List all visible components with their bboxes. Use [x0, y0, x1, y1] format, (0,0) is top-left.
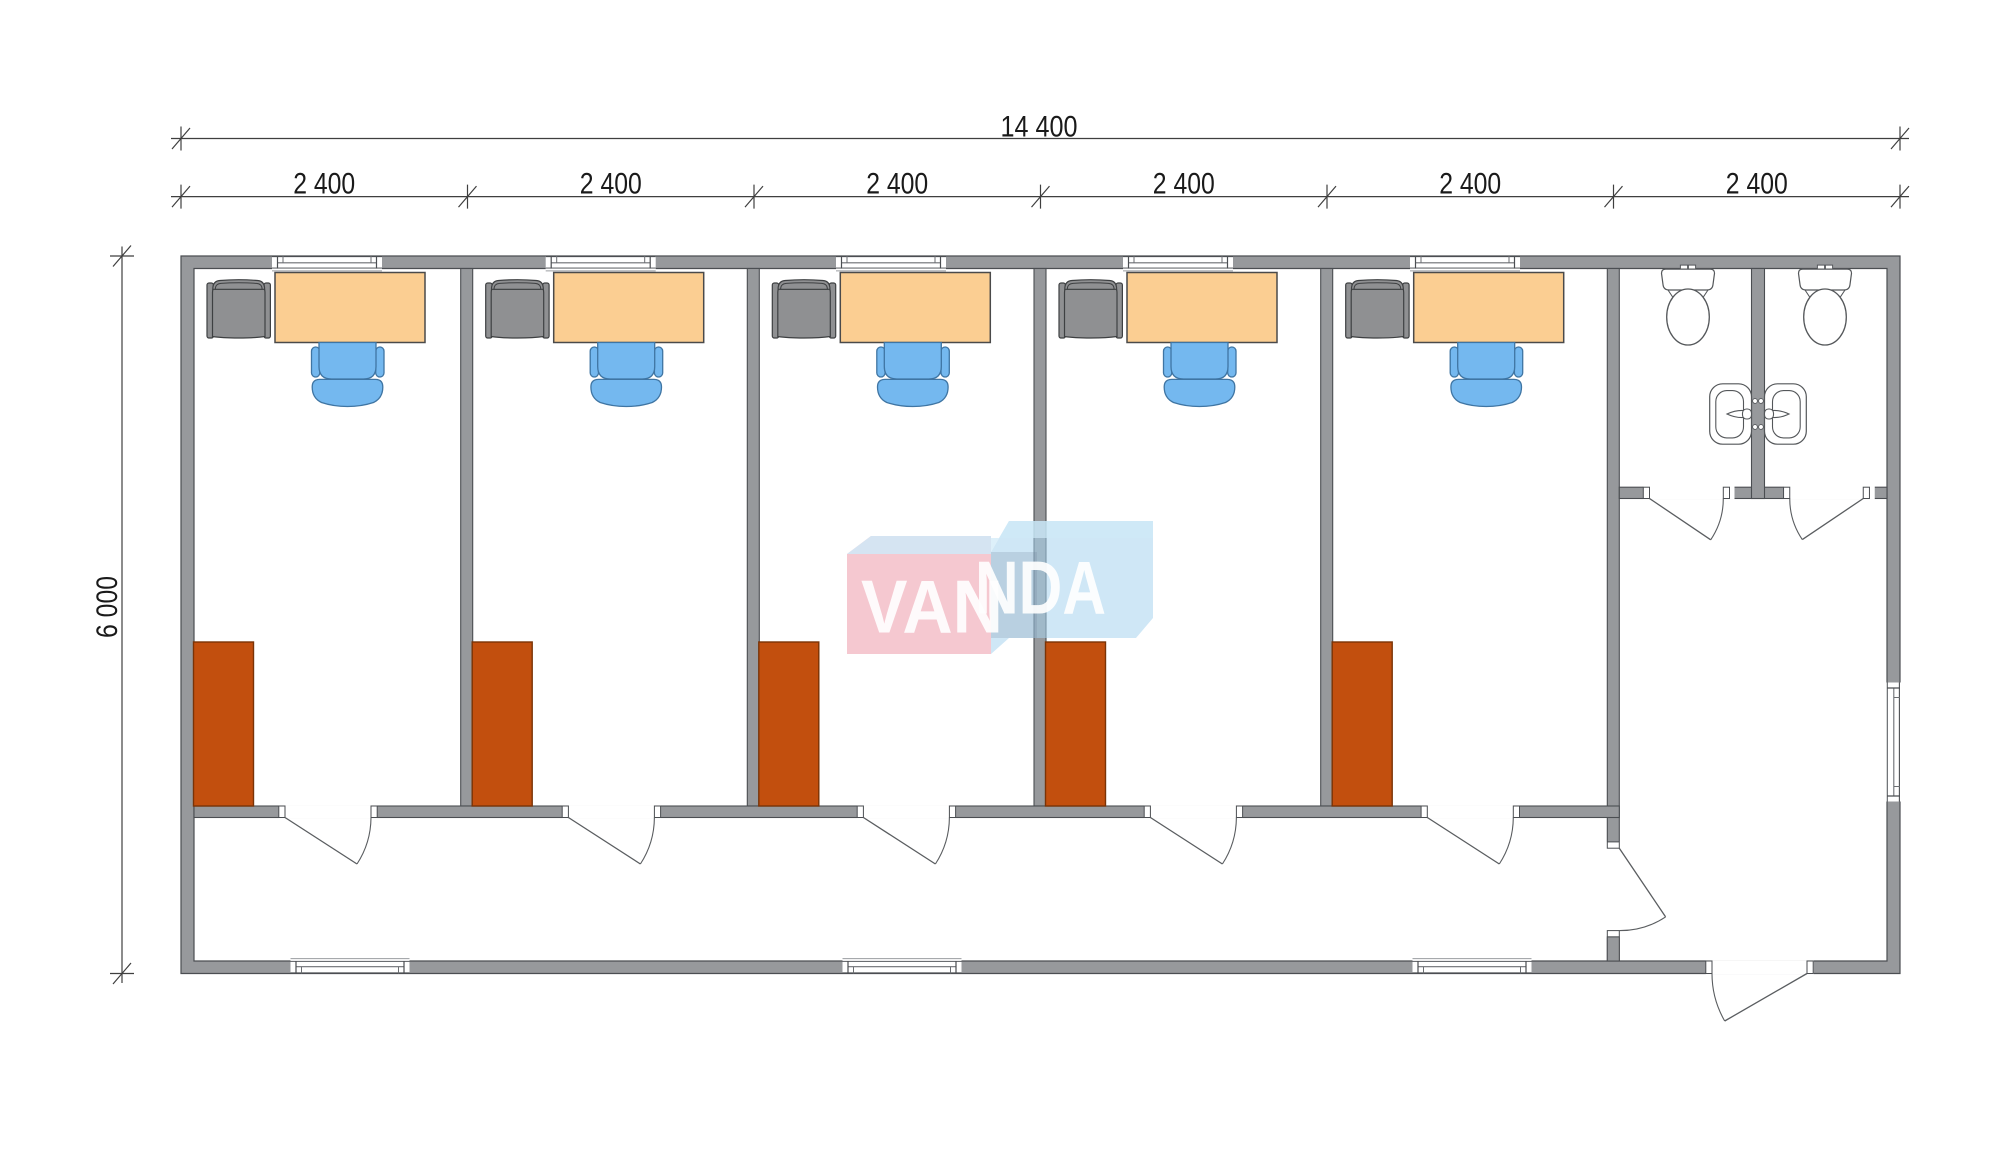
svg-text:2 400: 2 400 [866, 168, 928, 201]
svg-text:2 400: 2 400 [1726, 168, 1788, 201]
svg-text:2 400: 2 400 [1439, 168, 1501, 201]
svg-text:2 400: 2 400 [1153, 168, 1215, 201]
svg-text:NDA: NDA [975, 546, 1106, 630]
svg-text:2 400: 2 400 [580, 168, 642, 201]
svg-text:2 400: 2 400 [293, 168, 355, 201]
svg-text:14 400: 14 400 [1001, 111, 1078, 144]
svg-text:6 000: 6 000 [91, 576, 124, 638]
